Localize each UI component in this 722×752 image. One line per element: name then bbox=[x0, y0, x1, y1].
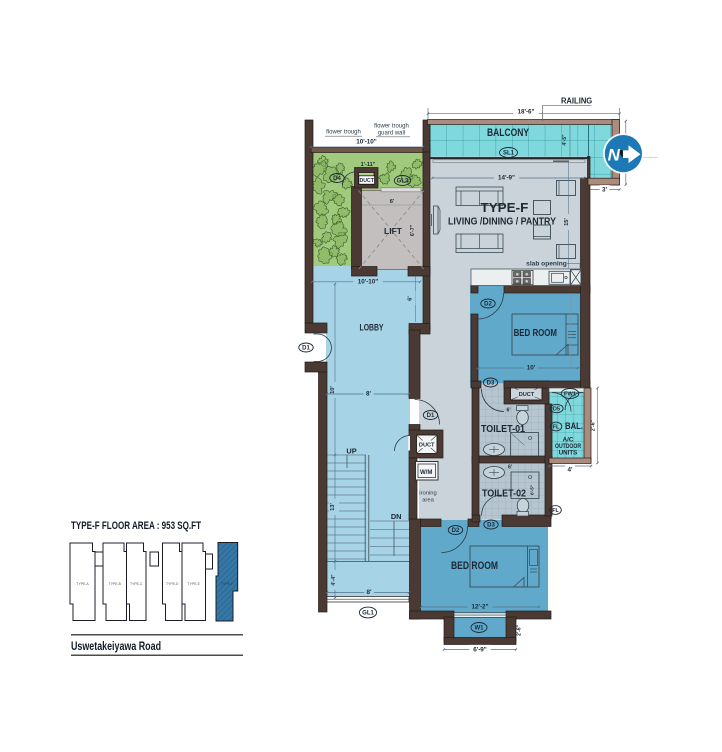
svg-text:10'-10": 10'-10" bbox=[356, 138, 377, 145]
svg-text:TOILET-02: TOILET-02 bbox=[482, 489, 526, 500]
svg-text:8': 8' bbox=[367, 589, 373, 596]
svg-text:FL: FL bbox=[552, 508, 559, 514]
svg-text:6': 6' bbox=[506, 408, 510, 414]
svg-text:BED ROOM: BED ROOM bbox=[514, 328, 557, 339]
svg-text:D3: D3 bbox=[487, 380, 495, 386]
svg-text:4'-4": 4'-4" bbox=[331, 574, 337, 586]
svg-text:DN: DN bbox=[391, 512, 402, 521]
svg-text:D1: D1 bbox=[302, 345, 310, 351]
svg-text:8': 8' bbox=[366, 391, 372, 398]
svg-text:UNITS: UNITS bbox=[559, 450, 578, 457]
svg-text:BALCONY: BALCONY bbox=[487, 127, 530, 139]
svg-text:DUCT: DUCT bbox=[359, 178, 374, 184]
svg-text:W/M: W/M bbox=[420, 469, 433, 476]
svg-text:UP: UP bbox=[346, 446, 356, 455]
svg-text:14'-9": 14'-9" bbox=[498, 175, 515, 182]
svg-text:2'-6": 2'-6" bbox=[591, 419, 597, 431]
svg-text:TYPE-F FLOOR AREA : 953 SQ.FT: TYPE-F FLOOR AREA : 953 SQ.FT bbox=[71, 520, 201, 532]
svg-text:GL3: GL3 bbox=[397, 178, 409, 184]
svg-text:1'-11": 1'-11" bbox=[361, 162, 376, 168]
svg-text:TYPE-D: TYPE-D bbox=[166, 582, 179, 586]
svg-text:FL: FL bbox=[553, 424, 560, 430]
svg-text:SL1: SL1 bbox=[503, 150, 515, 156]
svg-text:6': 6' bbox=[508, 465, 512, 471]
svg-text:10'-10": 10'-10" bbox=[358, 279, 379, 286]
svg-text:10': 10' bbox=[527, 365, 536, 372]
svg-text:flower trough: flower trough bbox=[326, 130, 361, 136]
svg-text:area: area bbox=[422, 498, 434, 504]
svg-text:3': 3' bbox=[602, 187, 608, 194]
svg-text:D3: D3 bbox=[487, 522, 495, 528]
svg-text:Uswetakeiyawa Road: Uswetakeiyawa Road bbox=[71, 639, 161, 653]
svg-text:18'-6": 18'-6" bbox=[517, 109, 534, 116]
svg-text:D1: D1 bbox=[427, 413, 435, 419]
svg-text:12'-2": 12'-2" bbox=[471, 604, 488, 611]
svg-text:TYPE-F: TYPE-F bbox=[221, 582, 233, 586]
svg-text:guard wall: guard wall bbox=[378, 131, 405, 137]
svg-text:LIVING /DINING / PANTRY: LIVING /DINING / PANTRY bbox=[448, 217, 556, 228]
svg-text:D4: D4 bbox=[333, 176, 341, 182]
svg-text:2'-6": 2'-6" bbox=[517, 624, 523, 635]
svg-text:slab opening: slab opening bbox=[526, 261, 567, 268]
svg-text:D2: D2 bbox=[452, 528, 460, 534]
svg-text:BAL.: BAL. bbox=[565, 421, 583, 431]
svg-text:TYPE-B: TYPE-B bbox=[109, 582, 122, 586]
svg-text:N: N bbox=[608, 145, 621, 164]
svg-text:BED ROOM: BED ROOM bbox=[451, 560, 498, 572]
svg-text:D2: D2 bbox=[484, 301, 492, 307]
svg-text:6'-9": 6'-9" bbox=[473, 646, 487, 653]
svg-text:flower trough: flower trough bbox=[374, 124, 409, 130]
svg-text:TOILET-01: TOILET-01 bbox=[481, 424, 526, 435]
svg-text:6': 6' bbox=[408, 296, 414, 301]
svg-text:D5: D5 bbox=[553, 406, 560, 412]
svg-text:6'-5": 6'-5" bbox=[530, 485, 535, 495]
svg-text:6'-7": 6'-7" bbox=[410, 224, 416, 236]
svg-text:TYPE-F: TYPE-F bbox=[481, 201, 529, 215]
svg-text:6': 6' bbox=[390, 199, 395, 205]
svg-text:FW1: FW1 bbox=[564, 391, 577, 397]
svg-text:TYPE-C: TYPE-C bbox=[130, 582, 143, 586]
svg-text:RAILING: RAILING bbox=[561, 96, 593, 106]
svg-text:15': 15' bbox=[564, 217, 570, 225]
svg-text:DUCT: DUCT bbox=[419, 443, 435, 449]
svg-text:TYPE-A: TYPE-A bbox=[76, 582, 89, 586]
svg-text:4'-5": 4'-5" bbox=[562, 134, 568, 146]
svg-text:4': 4' bbox=[568, 466, 574, 473]
svg-text:ironing: ironing bbox=[419, 491, 436, 497]
svg-text:10': 10' bbox=[330, 385, 336, 393]
svg-text:LIFT: LIFT bbox=[384, 226, 403, 236]
svg-text:DUCT: DUCT bbox=[519, 392, 535, 398]
svg-text:GL1: GL1 bbox=[362, 610, 374, 616]
svg-text:W1: W1 bbox=[475, 625, 485, 631]
svg-text:13': 13' bbox=[330, 502, 336, 510]
svg-text:TYPE-E: TYPE-E bbox=[188, 582, 201, 586]
svg-text:LOBBY: LOBBY bbox=[360, 323, 384, 333]
